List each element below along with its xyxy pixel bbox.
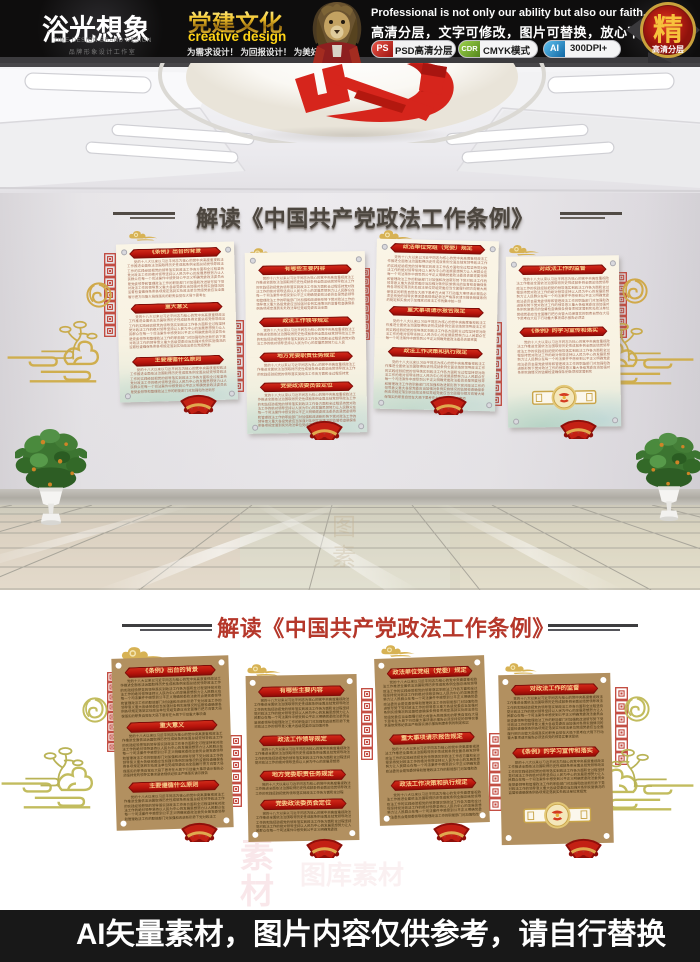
svg-text:高清分层: 高清分层	[652, 44, 684, 54]
svg-text:精: 精	[653, 14, 683, 47]
svg-text:图: 图	[332, 514, 356, 541]
svg-text:素: 素	[332, 544, 356, 571]
